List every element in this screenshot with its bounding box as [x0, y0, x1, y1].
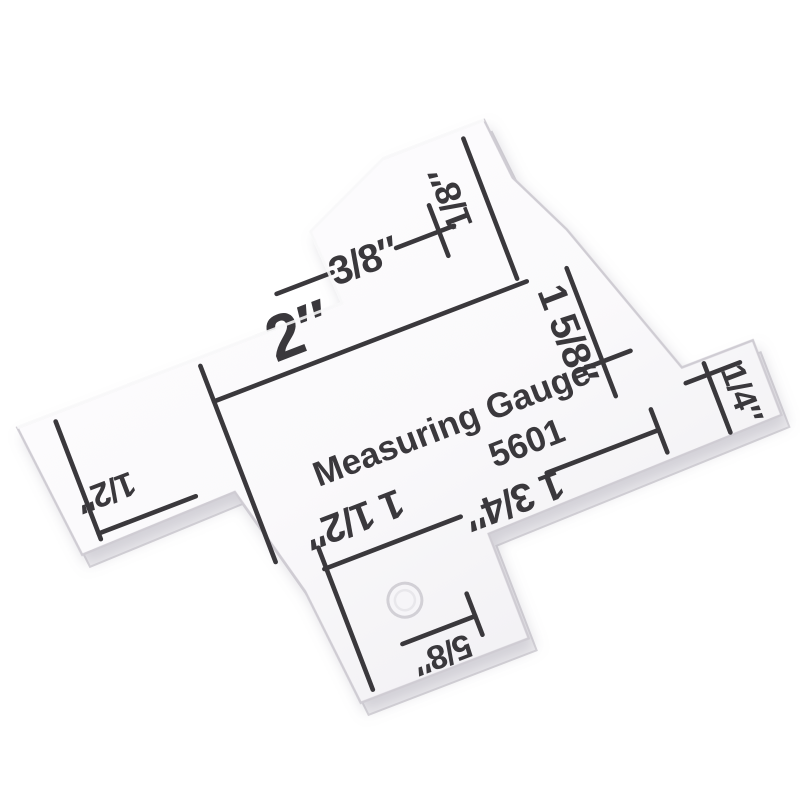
measuring-gauge-photo: 3/8″ 1/8″ 2″ 1 5/8″ 1/4″ 1/2″ 1 1/2″ 1 3… [0, 0, 800, 800]
product-photo: 3/8″ 1/8″ 2″ 1 5/8″ 1/4″ 1/2″ 1 1/2″ 1 3… [0, 0, 800, 800]
